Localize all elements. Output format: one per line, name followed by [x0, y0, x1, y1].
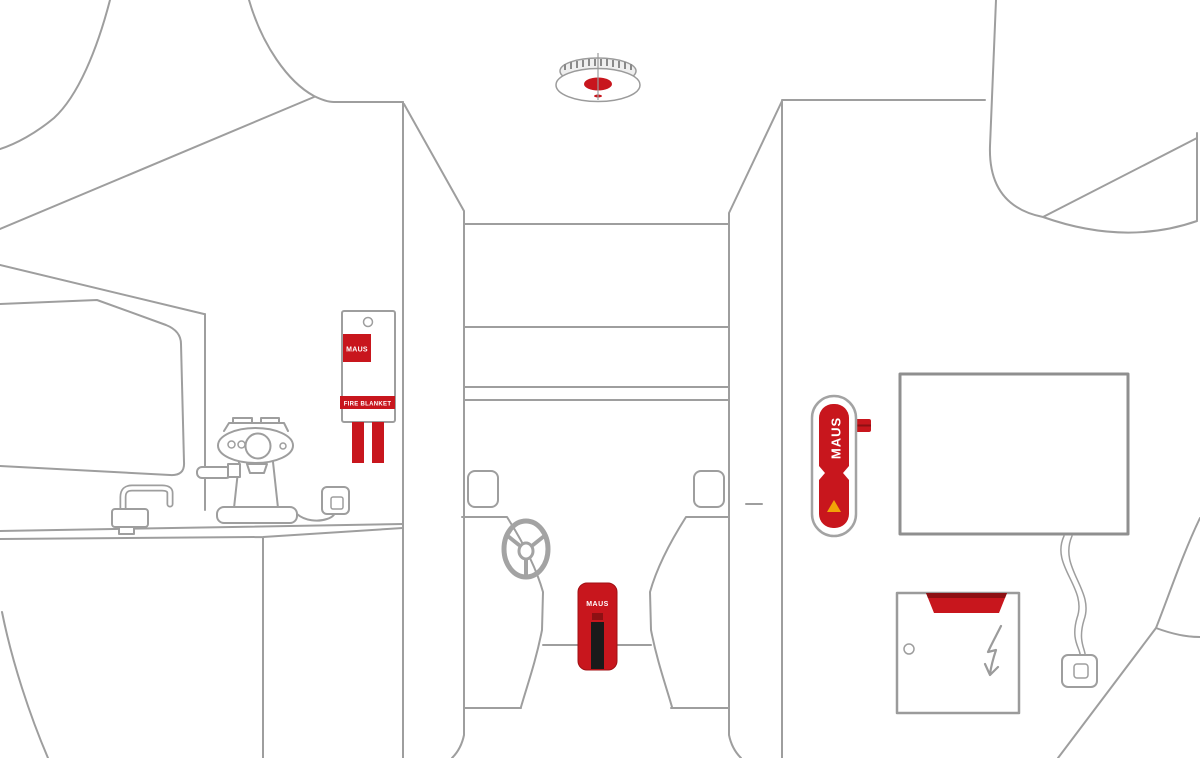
wall-extinguisher-brand: MAUS	[829, 417, 844, 459]
tv-screen	[900, 374, 1128, 534]
cab-fire-extinguisher: MAUS	[578, 583, 617, 670]
tv-cable	[1061, 536, 1086, 657]
passenger-seat	[650, 517, 729, 707]
portafilter-handle	[197, 467, 231, 478]
driver-headrest	[468, 471, 498, 507]
steering-wheel	[504, 521, 548, 577]
kitchen-window	[0, 300, 184, 475]
hang-hole	[364, 318, 373, 327]
wall-power-socket	[1062, 655, 1097, 687]
kitchen-counter	[0, 524, 403, 758]
coffee-machine	[197, 418, 336, 523]
fire-blanket-brand: MAUS	[346, 347, 368, 354]
campervan-illustration: MAUS MAUS MAUS FIRE BLANKET	[0, 0, 1200, 758]
coffee-machine-base	[217, 507, 297, 523]
passenger-headrest	[694, 471, 724, 507]
sink-faucet	[112, 488, 170, 534]
scene-svg: MAUS MAUS MAUS FIRE BLANKET	[0, 0, 1200, 758]
cab-extinguisher-brand: MAUS	[586, 601, 609, 608]
kitchen-power-socket	[322, 487, 349, 514]
left-overhead-cabinet-lines	[0, 0, 403, 510]
fire-blanket: MAUS FIRE BLANKET	[340, 311, 395, 463]
fire-blanket-label: FIRE BLANKET	[344, 402, 392, 408]
panel-fire-suppressor	[926, 593, 1007, 613]
electrical-panel	[897, 593, 1019, 713]
smoke-detector	[556, 53, 640, 102]
panel-lock-knob	[904, 644, 914, 654]
wall-fire-extinguisher: MAUS	[812, 396, 871, 536]
